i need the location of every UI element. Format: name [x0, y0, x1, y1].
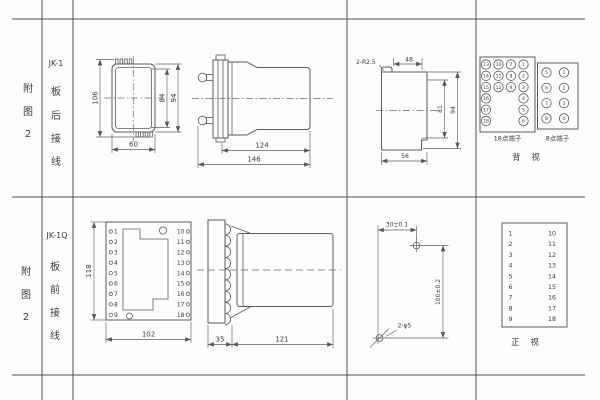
relay-body-outline	[123, 229, 168, 310]
terminal-number: 2	[114, 239, 118, 246]
terminal-number: 6	[509, 284, 513, 291]
terminal-number: 16	[177, 291, 185, 298]
wiring-label-char: 前	[50, 283, 60, 296]
terminal-number: 14	[483, 74, 489, 80]
dim-text-124: 124	[255, 142, 269, 150]
terminal-number: 16	[548, 295, 556, 302]
terminal-number: 18	[177, 312, 185, 319]
terminal-number: 1	[563, 70, 566, 76]
terminal-grid-18pt: 13 14 15 16 17 18 10 11 12 7 8 9 1 2 3 4…	[481, 60, 528, 126]
holes-note: 2-φ5	[386, 323, 412, 337]
left-terminal-column: 1 2 3 4 5 6 7 8 9	[109, 229, 118, 319]
dim-text-81: 81	[437, 105, 444, 113]
terminal-number: 7	[509, 295, 513, 302]
terminal-number: 1	[522, 62, 525, 68]
terminal-number: 13	[177, 260, 185, 267]
terminal-number: 9	[114, 312, 118, 319]
dim-text-146: 146	[247, 156, 261, 164]
note-text-2-R2.5: 2-R2.5	[356, 59, 376, 66]
fig-label-number: 2	[25, 129, 31, 140]
dim-124: 124	[222, 131, 310, 154]
terminal-number: 1	[114, 229, 118, 236]
wiring-label-char: 接	[51, 132, 61, 145]
terminal-number: 14	[177, 270, 185, 277]
terminal-number: 3	[563, 101, 566, 107]
terminal-teeth-bottom	[136, 132, 152, 137]
jk1q-front-terminal-diagram: 1 2 3 4 5 6 7 8 9 10 11 12 13 14 15 16 1…	[502, 223, 567, 348]
radius-note: 2-R2.5	[356, 59, 384, 71]
front-view-label: 正 视	[511, 337, 543, 348]
terminal-number: 2	[563, 86, 566, 92]
terminal-number: 8	[114, 302, 118, 309]
terminal-number: 17	[177, 302, 185, 309]
terminal-number: 6	[114, 281, 118, 288]
terminal-number: 13	[548, 263, 556, 270]
dim-48: 48	[394, 57, 423, 71]
terminal-list-left: 1 2 3 4 5 6 7 8 9	[509, 231, 513, 324]
model-label-jk1: JK-1	[48, 59, 64, 68]
dim-text-56: 56	[401, 153, 409, 160]
terminal-number: 3	[114, 250, 118, 257]
terminal-number: 12	[496, 85, 502, 91]
front-panel-plate	[208, 220, 225, 323]
dim-102: 102	[106, 322, 191, 343]
wiring-label-char: 板	[51, 85, 61, 98]
terminal-teeth-top	[116, 59, 132, 64]
wiring-label-char: 接	[50, 306, 60, 319]
terminal-number: 12	[177, 250, 185, 257]
dim-30: 30±0.1	[378, 222, 417, 241]
flange-plate	[213, 60, 228, 138]
dim-text-121: 121	[275, 336, 288, 344]
terminal-number: 5	[522, 107, 525, 113]
terminal-number: 11	[548, 241, 556, 248]
jk1q-drill-plan-drawing: 30±0.1 100±0.2 2-φ5	[370, 222, 449, 348]
dim-text-48: 48	[405, 57, 413, 64]
jk1q-front-view-drawing: 1 2 3 4 5 6 7 8 9 10 11 12 13 14 15 16 1…	[85, 222, 191, 343]
terminal-number: 6	[522, 119, 525, 125]
terminal-number: 10	[177, 229, 185, 236]
dim-text-84: 84	[159, 93, 167, 102]
terminal-number: 15	[177, 281, 185, 288]
terminal-number: 2	[509, 241, 513, 248]
dim-81: 81	[422, 80, 449, 138]
fig-label-char: 附	[23, 82, 33, 95]
terminal-number: 17	[548, 305, 556, 312]
terminal-number: 3	[522, 85, 525, 91]
row2-header: 附 图 2 JK-1Q 板 前 接 线	[21, 231, 68, 342]
dim-text-106: 106	[92, 91, 100, 105]
terminal-number: 11	[496, 74, 502, 80]
terminal-number: 7	[545, 101, 548, 107]
rear-stud-bottom	[198, 116, 213, 125]
row1-header: 附 图 2 JK-1 板 后 接 线	[23, 59, 63, 168]
terminal-number: 1	[509, 231, 513, 238]
terminal-number: 11	[177, 239, 185, 246]
terminal-number: 6	[545, 86, 548, 92]
terminal-number: 4	[114, 260, 118, 267]
terminal-number: 7	[114, 291, 118, 298]
terminal-number: 10	[496, 62, 502, 68]
jk1q-side-view-drawing: 35 121	[197, 220, 341, 348]
dim-100: 100±0.2	[435, 246, 443, 339]
terminal-number: 3	[509, 252, 513, 259]
terminal-number: 8	[545, 116, 548, 122]
drawing-canvas: 附 图 2 JK-1 板 后 接 线 106	[0, 0, 600, 400]
note-text-2-phi5: 2-φ5	[398, 323, 412, 330]
terminal-number: 18	[548, 316, 556, 323]
dim-146: 146	[198, 126, 310, 168]
terminal-number: 9	[509, 316, 513, 323]
model-label-jk1q: JK-1Q	[45, 231, 67, 240]
dim-text-30: 30±0.1	[386, 222, 408, 229]
dim-text-60: 60	[129, 141, 138, 149]
jk1-front-view-drawing: 106 84 94 60	[92, 57, 182, 154]
rear-view-label: 背 视	[512, 152, 544, 163]
dim-118: 118	[85, 222, 106, 320]
mounting-hole	[159, 227, 166, 234]
jk1-panel-cutout-drawing: 2-R2.5 48 81 94 56	[356, 57, 461, 166]
rear-stud-top	[198, 73, 213, 82]
fig-label-char: 图	[23, 106, 33, 118]
terminal-number: 8	[509, 305, 513, 312]
terminal-number: 13	[483, 62, 489, 68]
cutout-outline	[382, 72, 428, 150]
wiring-label-char: 后	[51, 110, 61, 122]
terminal-number: 4	[563, 116, 566, 122]
terminal-number: 7	[510, 62, 513, 68]
fig-label-char: 附	[21, 265, 31, 278]
dim-35-121: 35 121	[208, 309, 333, 349]
dim-text-118: 118	[85, 264, 93, 277]
terminal-number: 15	[483, 85, 489, 91]
dim-text-94: 94	[170, 93, 178, 102]
terminal-bumps	[225, 224, 231, 325]
fig-label-char: 图	[21, 289, 31, 301]
label-18pt-terminals: 18点端子	[494, 134, 522, 143]
terminal-number: 5	[545, 70, 548, 76]
terminal-number: 18	[483, 119, 489, 125]
terminal-number: 14	[548, 273, 556, 280]
terminal-number: 15	[548, 284, 556, 291]
terminal-list-right: 10 11 12 13 14 15 16 17 18	[548, 231, 556, 324]
wiring-label-char: 线	[50, 329, 60, 342]
technical-drawing-sheet: 附 图 2 JK-1 板 后 接 线 106	[0, 0, 600, 400]
terminal-number: 9	[510, 85, 513, 91]
terminal-number: 10	[548, 231, 556, 238]
label-8pt-terminals: 8点端子	[546, 134, 570, 143]
wiring-label-char: 板	[50, 260, 60, 273]
dim-text-35: 35	[216, 336, 225, 344]
terminal-number: 12	[548, 252, 556, 259]
terminal-number: 17	[483, 107, 489, 113]
terminal-grid-8pt: 5 6 7 8 1 2 3 4	[542, 68, 569, 123]
terminal-number: 8	[510, 74, 513, 80]
drill-hole-top	[410, 239, 449, 253]
terminal-number: 5	[509, 273, 513, 280]
right-terminal-column: 10 11 12 13 14 15 16 17 18	[177, 229, 190, 319]
dim-text-100: 100±0.2	[435, 279, 442, 305]
dim-56: 56	[382, 152, 428, 165]
terminal-number: 4	[509, 263, 513, 270]
jk1-side-view-drawing: 124 146	[192, 55, 333, 168]
jk1-rear-terminal-diagram: 13 14 15 16 17 18 10 11 12 7 8 9 1 2 3 4…	[480, 57, 578, 163]
fig-label-number: 2	[23, 312, 29, 323]
terminal-number: 2	[522, 74, 525, 80]
wiring-label-char: 线	[51, 155, 61, 168]
mounting-hole	[127, 313, 133, 319]
dim-text-102: 102	[142, 331, 155, 339]
terminal-number: 4	[522, 96, 525, 102]
terminal-number: 16	[483, 96, 489, 102]
terminal-block-8pt	[538, 63, 579, 129]
dim-text-94b: 94	[450, 106, 457, 114]
terminal-number: 5	[114, 270, 118, 277]
